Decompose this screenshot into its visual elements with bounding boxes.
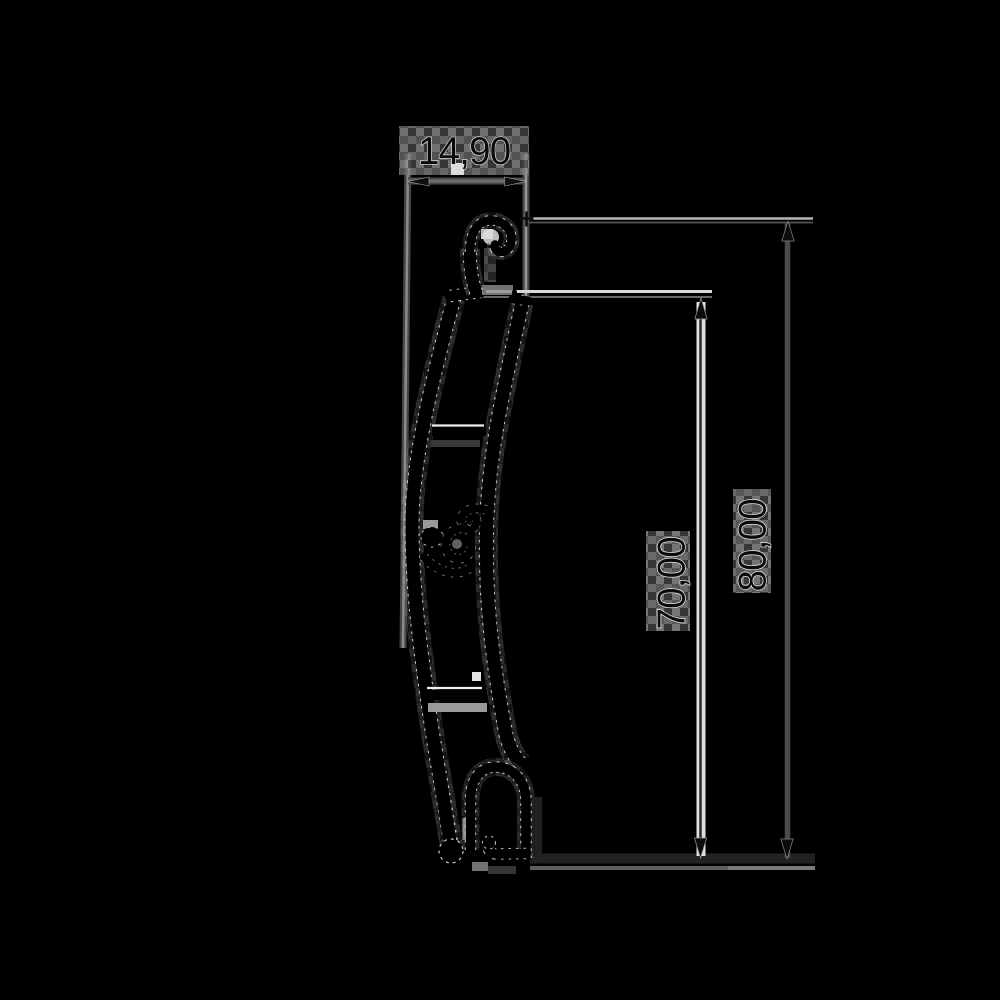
svg-text:80,00: 80,00 [732,499,775,591]
svg-text:70,00: 70,00 [651,537,694,629]
svg-text:14,90: 14,90 [418,130,510,173]
